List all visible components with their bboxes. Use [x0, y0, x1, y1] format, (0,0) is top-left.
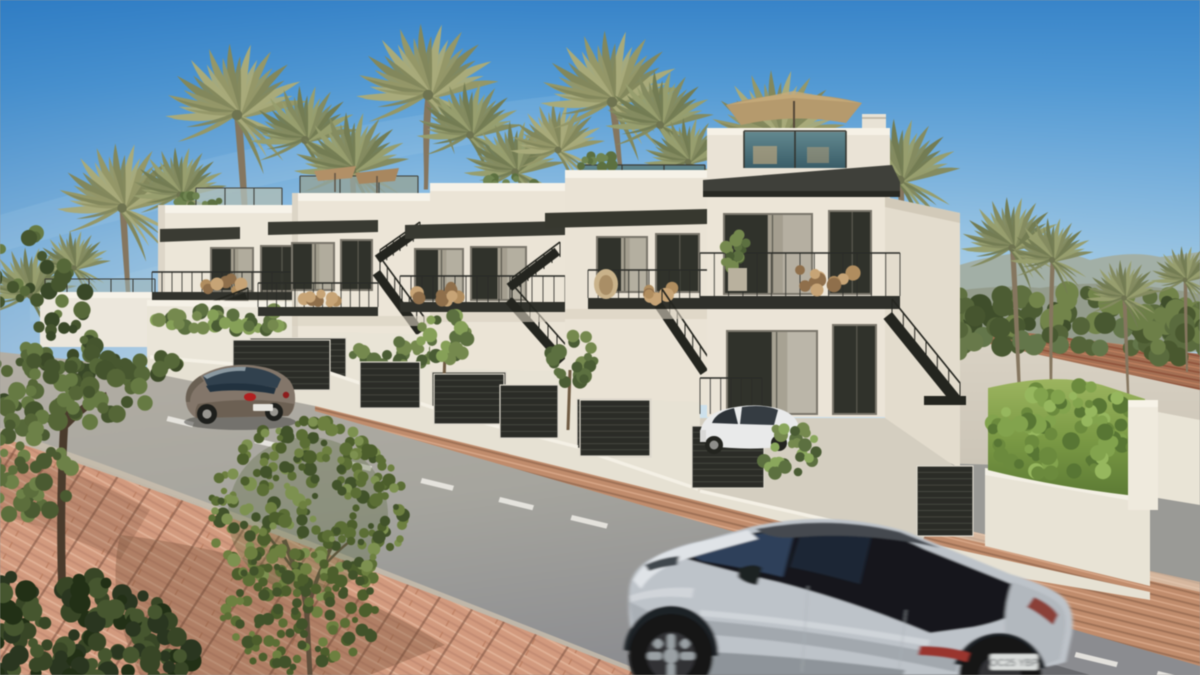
- svg-text:OC25 YBP: OC25 YBP: [990, 658, 1039, 669]
